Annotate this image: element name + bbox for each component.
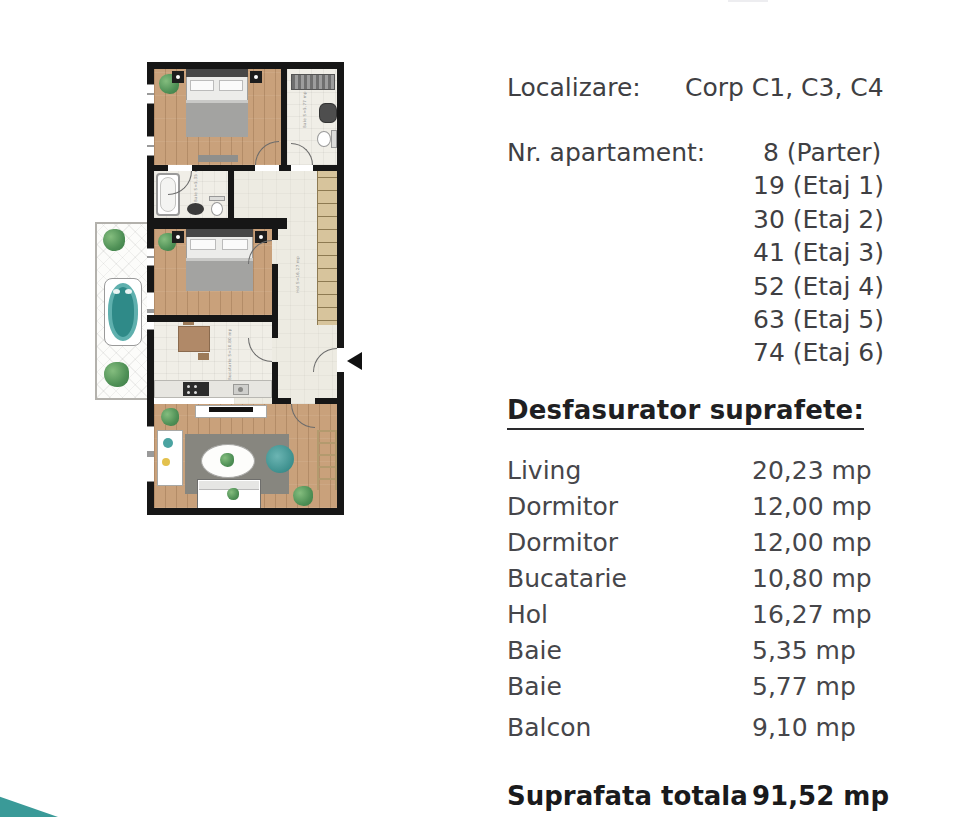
total-value: 91,52 mp — [752, 781, 889, 811]
wall — [279, 165, 291, 171]
room-area-value: 16,27 mp — [752, 600, 872, 629]
room-area-value: 20,23 mp — [752, 456, 872, 485]
tv — [209, 407, 253, 412]
localizare-value: Corp C1, C3, C4 — [685, 73, 884, 102]
room-area-value: 9,10 mp — [752, 713, 856, 742]
wall — [272, 229, 278, 240]
suprafete-row: Dormitor12,00 mp — [507, 528, 927, 564]
apartament-line: 41 (Etaj 3) — [753, 236, 884, 269]
total-label: Suprafata totala — [507, 781, 748, 811]
room-area-value: 5,77 mp — [752, 672, 856, 701]
wall — [147, 315, 278, 322]
nightstand — [172, 231, 184, 243]
hall-area-label: Hol S=16,27 mp — [295, 263, 300, 293]
room-label: Bucatarie — [507, 564, 627, 593]
bath1-toilet — [317, 131, 331, 147]
bath1-counter — [291, 74, 335, 90]
apartament-line: 8 (Parter) — [753, 136, 884, 169]
wall — [147, 62, 154, 84]
localizare-label: Localizare: — [507, 73, 641, 102]
jacuzzi-headrest — [125, 289, 132, 294]
apartament-line: 74 (Etaj 6) — [753, 336, 884, 369]
room-label: Baie — [507, 636, 562, 665]
wall — [337, 62, 344, 348]
suprafete-row: Baie5,35 mp — [507, 636, 927, 672]
room-label: Dormitor — [507, 492, 618, 521]
wall — [147, 508, 344, 515]
table-plant — [220, 453, 234, 467]
wall — [313, 165, 344, 171]
room-label: Living — [507, 456, 581, 485]
bedroom1-bench — [198, 155, 238, 162]
nightstand — [250, 71, 262, 83]
apartament-line: 52 (Etaj 4) — [753, 270, 884, 303]
suprafete-row: Bucatarie10,80 mp — [507, 564, 927, 600]
apartament-label: Nr. apartament: — [507, 138, 705, 167]
suprafete-row: Hol16,27 mp — [507, 600, 927, 636]
apartament-line: 19 (Etaj 1) — [753, 169, 884, 202]
bed-2-blanket — [186, 258, 253, 291]
wall — [147, 330, 154, 426]
wall — [192, 165, 255, 171]
sofa-plant — [227, 488, 239, 500]
window — [147, 136, 154, 156]
kitchen-area-label: Bucatarie S=10,80 mp — [227, 346, 232, 380]
wall — [147, 165, 168, 171]
bed-2-headboard — [186, 229, 253, 237]
apartament-line: 30 (Etaj 2) — [753, 203, 884, 236]
suprafete-row: Balcon9,10 mp — [507, 713, 927, 749]
entrance-arrow-icon — [347, 352, 362, 370]
wall — [147, 104, 154, 136]
room-area-value: 12,00 mp — [752, 528, 872, 557]
living-plant-top — [161, 408, 179, 426]
stove-burner — [194, 391, 197, 394]
apartament-list: 8 (Parter)19 (Etaj 1)30 (Etaj 2)41 (Etaj… — [753, 136, 884, 370]
room-area-value: 10,80 mp — [752, 564, 872, 593]
balcony-plant-bottom — [104, 362, 129, 387]
kitchen-chair — [198, 353, 209, 360]
wall — [147, 482, 154, 515]
wall-thick — [147, 218, 287, 229]
wall — [228, 171, 234, 218]
balcony-plant-top — [103, 229, 125, 251]
stove-burner — [187, 391, 190, 394]
bed-1-pillow — [190, 80, 214, 91]
floorplan: Baie S=5,77 mp Baie S=5,35 mp Bucatarie … — [95, 58, 385, 528]
suprafete-row: Dormitor12,00 mp — [507, 492, 927, 528]
bath2-toilet — [211, 202, 223, 216]
bed-1-blanket — [186, 100, 248, 137]
bed-2-pillow — [222, 239, 248, 250]
wall — [315, 398, 337, 404]
kitchen-counter — [154, 380, 272, 398]
ladder-shelf — [317, 430, 337, 490]
room-label: Dormitor — [507, 528, 618, 557]
living-plant-right — [293, 486, 313, 506]
bed-1-pillow — [219, 80, 243, 91]
bed-2-pillow — [190, 239, 216, 250]
corner-decoration — [0, 795, 58, 817]
room-area-value: 12,00 mp — [752, 492, 872, 521]
top-edge-fragment — [728, 0, 768, 2]
kitchen-table — [178, 326, 210, 352]
room-label: Baie — [507, 672, 562, 701]
hall-wardrobe — [317, 165, 337, 325]
stove-burner — [194, 385, 197, 388]
room-label: Balcon — [507, 713, 591, 742]
bath2-area-label: Baie S=5,35 mp — [193, 176, 198, 202]
suprafete-heading: Desfasurator suprafete: — [507, 395, 864, 430]
suprafete-row: Living20,23 mp — [507, 456, 927, 492]
bath2-toilet-tank — [209, 196, 225, 201]
room-label: Hol — [507, 600, 548, 629]
window — [147, 248, 154, 266]
suprafete-row: Baie5,77 mp — [507, 672, 927, 708]
wall — [278, 398, 291, 404]
nightstand — [172, 71, 184, 83]
suprafete-table: Living20,23 mpDormitor12,00 mpDormitor12… — [507, 456, 927, 749]
wall — [147, 62, 344, 69]
apartament-line: 63 (Etaj 5) — [753, 303, 884, 336]
bath1-sink — [319, 103, 337, 123]
bed-1-headboard — [186, 69, 248, 77]
wall — [337, 372, 344, 515]
room-area-value: 5,35 mp — [752, 636, 856, 665]
window — [147, 426, 154, 482]
console-item-yellow — [162, 458, 170, 466]
wall — [147, 266, 154, 292]
jacuzzi-headrest — [113, 289, 120, 294]
kitchen-sink-drain — [238, 387, 243, 392]
bath2-sink — [187, 203, 204, 215]
wall — [281, 69, 287, 165]
wall — [272, 264, 278, 338]
console-item-teal — [163, 438, 173, 448]
bath1-area-label: Baie S=5,77 mp — [302, 98, 307, 128]
balcony-door — [147, 292, 154, 330]
armchair-teal — [266, 445, 294, 473]
stove-burner — [187, 385, 190, 388]
window — [147, 84, 154, 104]
